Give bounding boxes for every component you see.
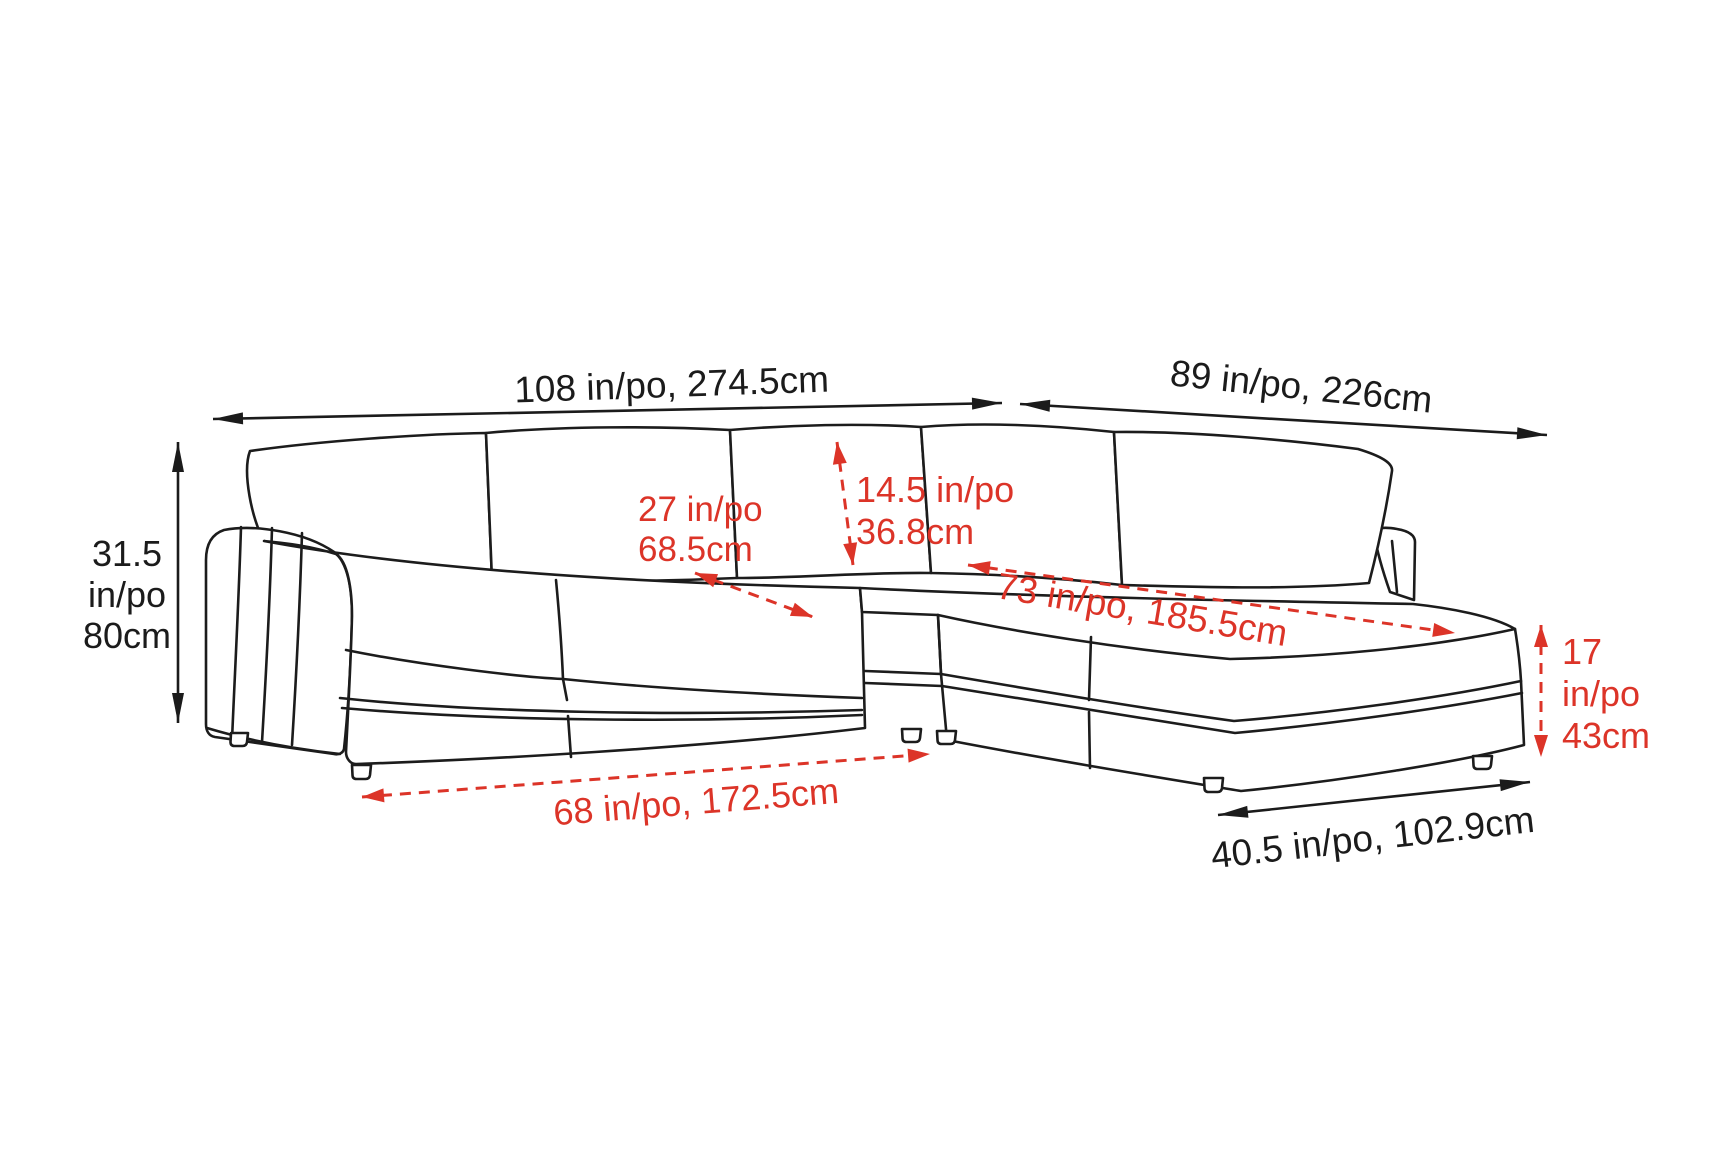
dimension-label-back-cushion-height: 14.5 in/po xyxy=(856,469,1014,510)
foot xyxy=(352,765,371,779)
arrowhead xyxy=(172,442,184,472)
back-cushion-5 xyxy=(1114,432,1392,587)
dimension-overall-height: 31.5in/po80cm xyxy=(83,442,184,723)
arrowhead xyxy=(1534,735,1548,757)
foot xyxy=(1473,756,1492,769)
arrowhead xyxy=(908,749,930,763)
foot xyxy=(937,731,956,744)
chaise-base-division xyxy=(1089,712,1090,768)
arrowhead xyxy=(213,412,243,424)
corner-cushion-bottom xyxy=(865,671,941,674)
dimension-label-seat-depth: 27 in/po xyxy=(638,490,763,529)
dimension-label-return-width: 89 in/po, 226cm xyxy=(1168,352,1434,420)
dimension-label-overall-width: 108 in/po, 274.5cm xyxy=(514,359,830,411)
dimension-label-seat-height: 17 xyxy=(1562,631,1602,672)
arrowhead xyxy=(1020,400,1050,412)
sofa-dimension-diagram: 108 in/po, 274.5cm89 in/po, 226cm31.5in/… xyxy=(0,0,1726,1150)
arrowhead xyxy=(1218,806,1248,818)
dimension-label-seat-height: 43cm xyxy=(1562,715,1650,756)
foot xyxy=(902,729,921,742)
foot xyxy=(231,733,249,746)
dimension-overall-width: 108 in/po, 274.5cm xyxy=(213,359,1002,425)
arrowhead xyxy=(1500,779,1530,791)
corner-base-top xyxy=(865,683,942,686)
foot xyxy=(1204,778,1223,792)
left-arm xyxy=(206,528,352,754)
dimension-label-overall-height: 80cm xyxy=(83,615,171,656)
dimension-seat-height: 17in/po43cm xyxy=(1534,625,1650,757)
dimension-return-width: 89 in/po, 226cm xyxy=(1020,352,1547,439)
dimension-chaise-depth: 40.5 in/po, 102.9cm xyxy=(1209,779,1537,876)
dimension-label-seat-depth: 68.5cm xyxy=(638,530,753,569)
dimension-label-seat-height: in/po xyxy=(1562,673,1640,714)
diagram-canvas: 108 in/po, 274.5cm89 in/po, 226cm31.5in/… xyxy=(0,0,1726,1150)
dimension-label-back-cushion-height: 36.8cm xyxy=(856,511,974,552)
arrowhead xyxy=(1517,427,1547,439)
arrowhead xyxy=(1534,625,1548,647)
arrowhead xyxy=(172,693,184,723)
dimension-label-overall-height: in/po xyxy=(88,574,166,615)
dimension-label-overall-height: 31.5 xyxy=(92,533,162,574)
arrowhead xyxy=(972,398,1002,410)
